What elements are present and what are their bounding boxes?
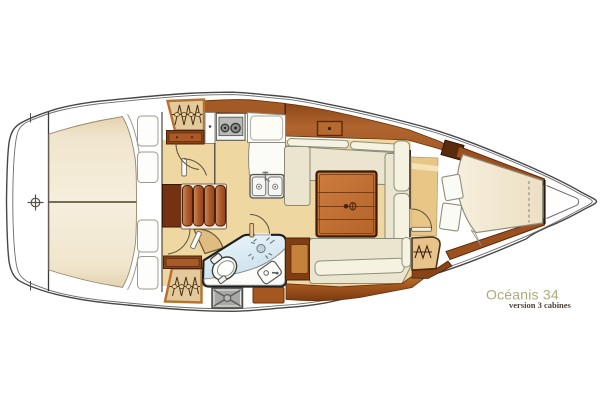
- svg-text:version 3 cabines: version 3 cabines: [509, 300, 572, 310]
